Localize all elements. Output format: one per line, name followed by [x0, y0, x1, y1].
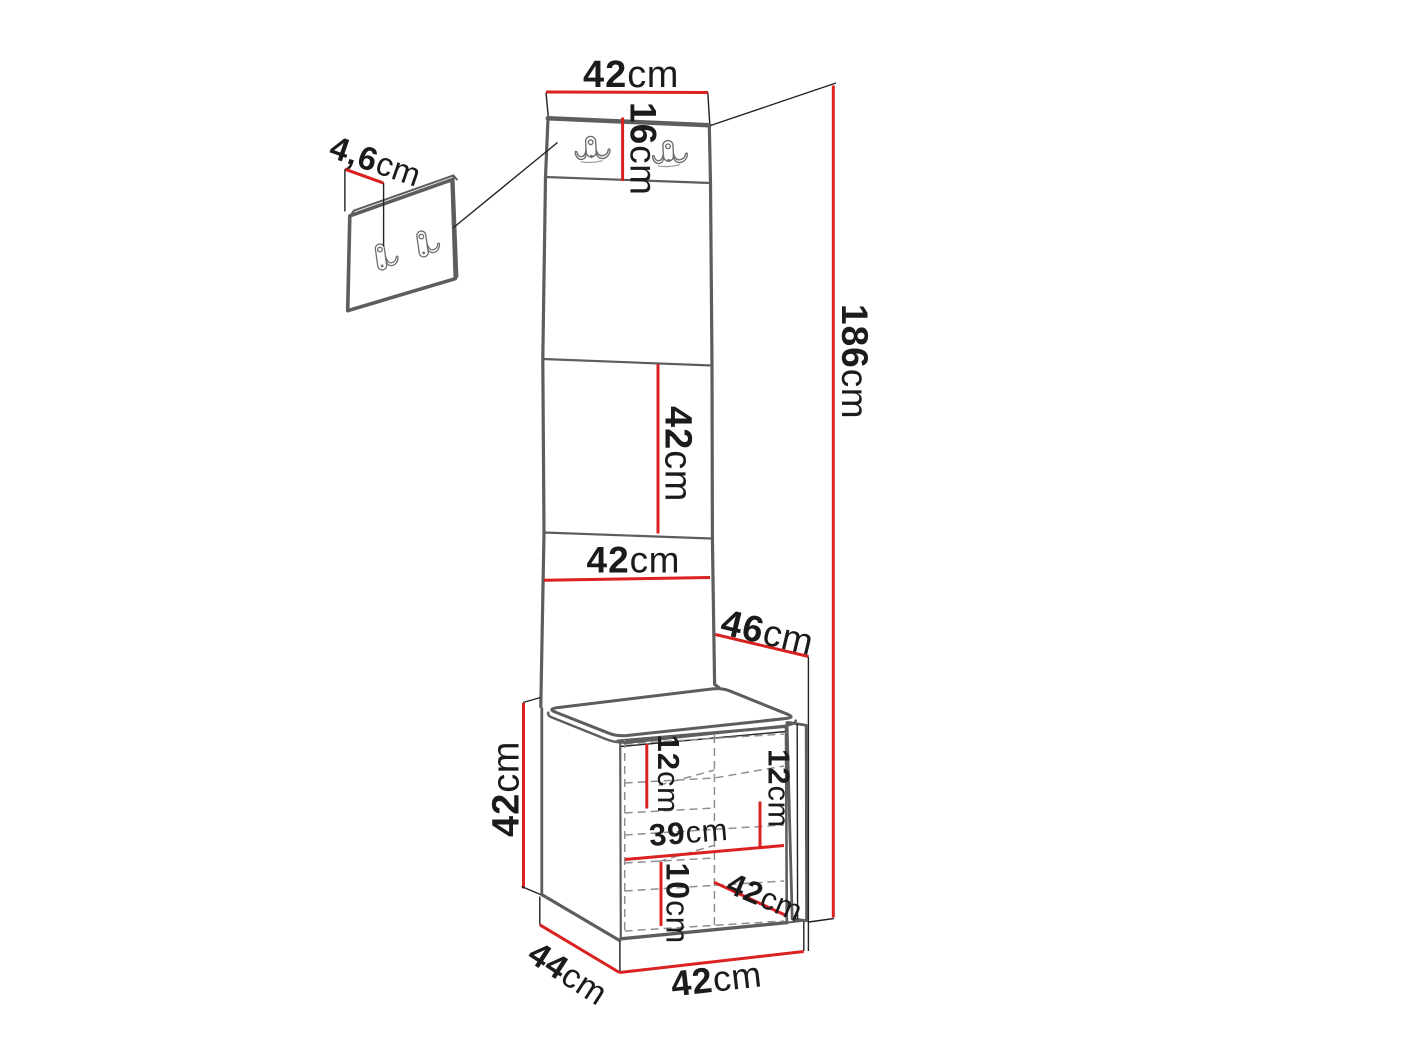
svg-text:16cm: 16cm	[623, 102, 664, 195]
svg-text:42cm: 42cm	[486, 741, 528, 837]
svg-text:39cm: 39cm	[648, 812, 729, 853]
svg-text:12cm: 12cm	[762, 749, 797, 828]
svg-text:12cm: 12cm	[651, 735, 686, 814]
svg-text:42cm: 42cm	[583, 54, 679, 96]
svg-text:186cm: 186cm	[834, 304, 875, 419]
svg-text:42cm: 42cm	[657, 406, 699, 502]
svg-text:10cm: 10cm	[660, 863, 696, 944]
svg-text:42cm: 42cm	[587, 540, 680, 581]
